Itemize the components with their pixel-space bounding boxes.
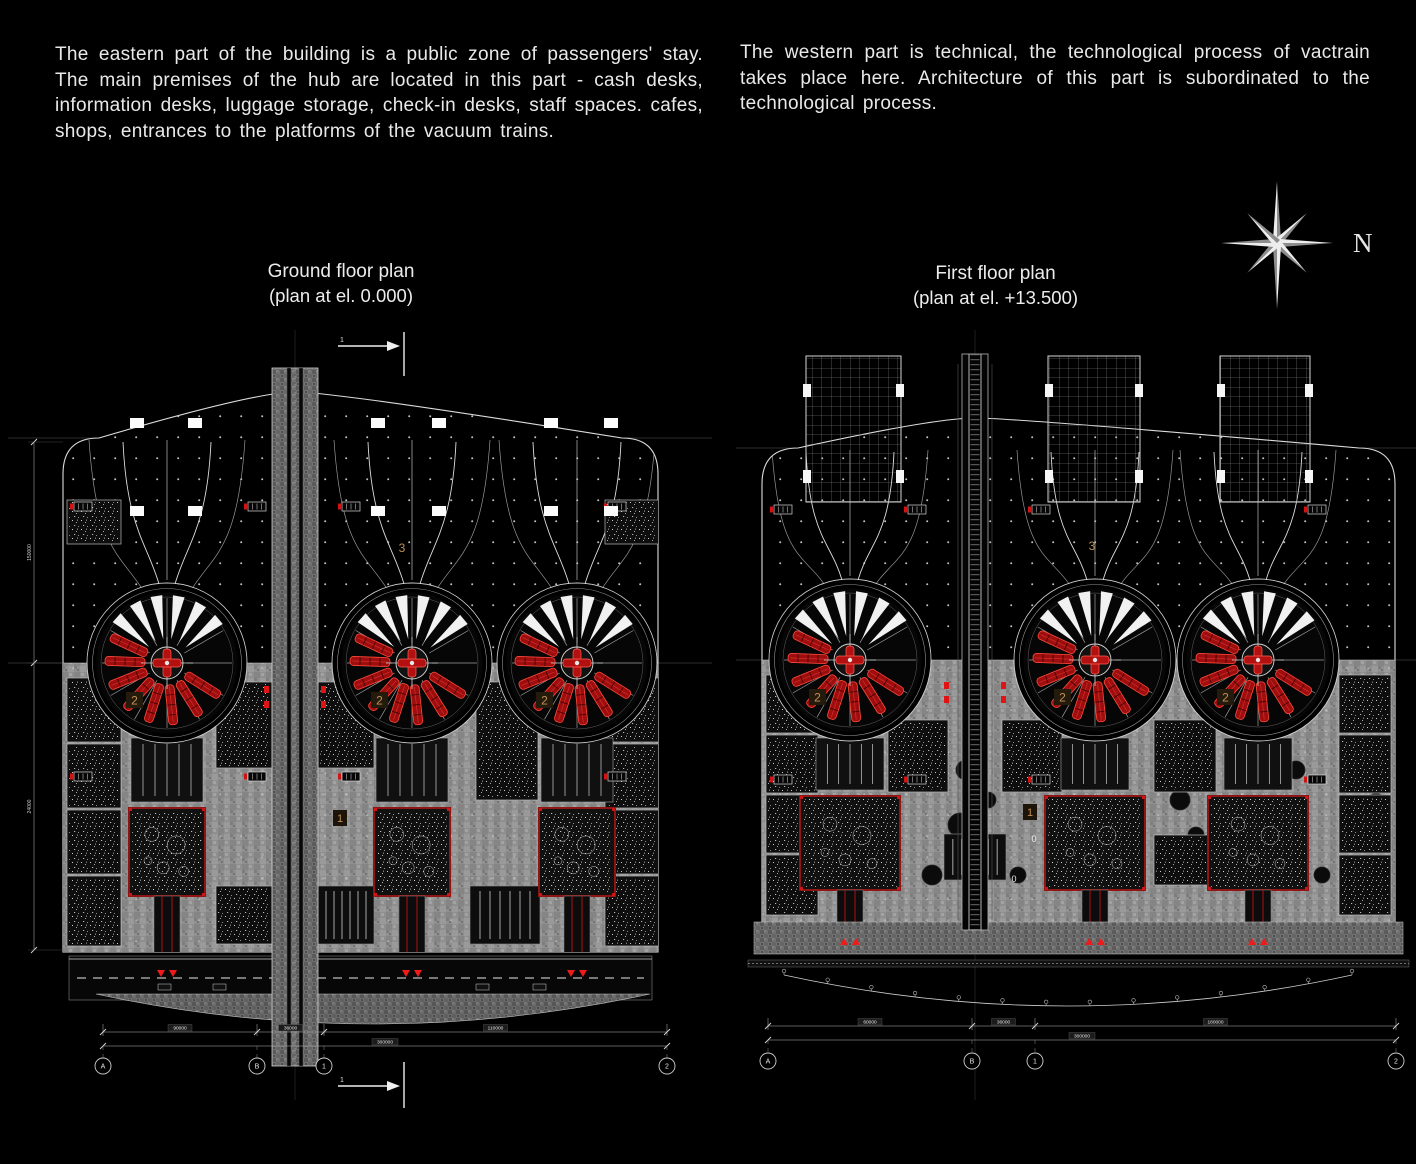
side-dimension: 15000024000 (27, 439, 63, 953)
red-marker (1001, 696, 1006, 703)
platform-fan (87, 583, 247, 743)
platform-train-bar (350, 656, 390, 666)
floor-plan: 6000036000180000300000AB123222100 (736, 330, 1416, 1100)
zone-label-3: 3 (1089, 539, 1096, 553)
roof-grid (1048, 356, 1140, 502)
zone-label-3: 3 (399, 541, 406, 555)
tree-circle (1314, 867, 1330, 883)
platform-fan (1014, 579, 1176, 741)
ground-floor-plan-drawing: 9000036000110000300000AB1215000024000113… (8, 330, 712, 1130)
zone-label-2: 2 (541, 694, 548, 708)
hall-stem (564, 896, 590, 954)
skylight-square (188, 506, 202, 516)
dimension-value: 36000 (284, 1026, 298, 1032)
facade-arc (782, 969, 1354, 1006)
grid-bubble-label: 1 (1033, 1059, 1037, 1066)
hall-stem (399, 896, 425, 954)
svg-text:24000: 24000 (27, 799, 33, 813)
hall-stem (154, 896, 180, 954)
zone-label-1: 1 (337, 813, 343, 825)
platform-train-bar (1033, 653, 1073, 663)
grid-bubble-label: A (101, 1064, 106, 1071)
section-label: 1 (340, 1077, 344, 1084)
skylight-square (371, 418, 385, 428)
svg-text:150000: 150000 (27, 544, 33, 561)
vactrain-corridor (958, 354, 992, 930)
platform-fan (1177, 579, 1339, 741)
dimension-lines: 6000036000180000300000AB12 (760, 1018, 1404, 1069)
dimension-value: 60000 (863, 1020, 877, 1026)
platform-train-bar (515, 656, 555, 666)
zone-label-0: 0 (1031, 834, 1036, 844)
skylight-square (604, 418, 618, 428)
grid-bubble-label: B (970, 1059, 975, 1066)
red-marker (264, 701, 269, 708)
equipment-room (470, 886, 540, 944)
intro-text-eastern: The eastern part of the building is a pu… (55, 42, 703, 144)
zone-label-1: 1 (1027, 807, 1033, 819)
section-label: 1 (340, 337, 344, 344)
compass-ray (1273, 243, 1281, 309)
tree-circle (1170, 790, 1190, 810)
grid-bubble-label: B (255, 1064, 260, 1071)
skylight-square (130, 506, 144, 516)
skylight-square (544, 418, 558, 428)
compass-rose: N (1205, 168, 1405, 333)
skylight-square (371, 506, 385, 516)
vehicle (213, 984, 226, 990)
compass-ray (1221, 239, 1277, 247)
vehicle (533, 984, 546, 990)
red-marker (944, 696, 949, 703)
dimension-lines: 9000036000110000300000AB12 (95, 1024, 675, 1074)
section-marker: 1 (338, 1062, 404, 1108)
first-plan-title-line1: First floor plan (823, 262, 1168, 286)
floor-plan: 9000036000110000300000AB1215000024000113… (8, 330, 712, 1108)
dimension-value: 36000 (997, 1020, 1011, 1026)
platform-fan (497, 583, 657, 743)
platform-train-bar (788, 653, 828, 663)
apron-terrace (96, 994, 650, 1024)
dimension-value: 180000 (1207, 1020, 1223, 1026)
skylight-square (432, 506, 446, 516)
vactrain-corridor (272, 368, 318, 1066)
dimension-value: 90000 (173, 1026, 187, 1032)
intro-text-western: The western part is technical, the techn… (740, 40, 1370, 117)
zone-label-2: 2 (1222, 691, 1229, 705)
skylight-square (432, 418, 446, 428)
zone-label-2: 2 (131, 694, 138, 708)
zone-label-2: 2 (376, 694, 383, 708)
section-marker: 1 (338, 332, 404, 376)
platform-fan (769, 579, 931, 741)
skylight-square (544, 506, 558, 516)
skylight-square (604, 506, 618, 516)
ground-plan-title-line2: (plan at el. 0.000) (171, 284, 511, 308)
roof-grid (806, 356, 901, 502)
zone-label-0: 0 (1011, 874, 1016, 884)
ground-plan-title-line1: Ground floor plan (171, 260, 511, 284)
vehicle (158, 984, 171, 990)
service-road (69, 956, 652, 1000)
red-marker (321, 701, 326, 708)
red-marker (321, 686, 326, 693)
grid-bubble-label: 2 (665, 1064, 669, 1071)
red-marker (1001, 682, 1006, 689)
platform-fan (332, 583, 492, 743)
vehicle (476, 984, 489, 990)
first-plan-title: First floor plan (plan at el. +13.500) (823, 262, 1168, 310)
grid-bubble-label: 2 (1394, 1059, 1398, 1066)
grid-bubble-label: 1 (322, 1064, 326, 1071)
platform-train-bar (105, 656, 145, 666)
dimension-total: 300000 (1074, 1034, 1090, 1040)
compass-north-label: N (1353, 228, 1373, 258)
first-floor-plan-drawing: 6000036000180000300000AB123222100 (736, 330, 1416, 1130)
gallery-band (754, 922, 1403, 954)
dimension-total: 300000 (377, 1040, 393, 1046)
dimension-value: 110000 (488, 1026, 504, 1032)
grid-bubble-label: A (766, 1059, 771, 1066)
hall-stem (1245, 890, 1271, 924)
skylight-square (130, 418, 144, 428)
poster-canvas: The eastern part of the building is a pu… (0, 0, 1416, 1164)
compass-rays (1221, 181, 1333, 309)
red-marker (264, 686, 269, 693)
zone-label-2: 2 (1059, 691, 1066, 705)
roof-grid (1220, 356, 1310, 502)
skylight-square (188, 418, 202, 428)
hall-stem (837, 890, 863, 924)
red-marker (944, 682, 949, 689)
hall-stem (1082, 890, 1108, 924)
zone-label-2: 2 (814, 691, 821, 705)
compass-ray (1273, 181, 1281, 243)
platform-train-bar (1196, 653, 1236, 663)
compass-ray (1277, 239, 1333, 247)
tree-circle (922, 865, 942, 885)
first-plan-title-line2: (plan at el. +13.500) (823, 286, 1168, 310)
ground-plan-title: Ground floor plan (plan at el. 0.000) (171, 260, 511, 308)
